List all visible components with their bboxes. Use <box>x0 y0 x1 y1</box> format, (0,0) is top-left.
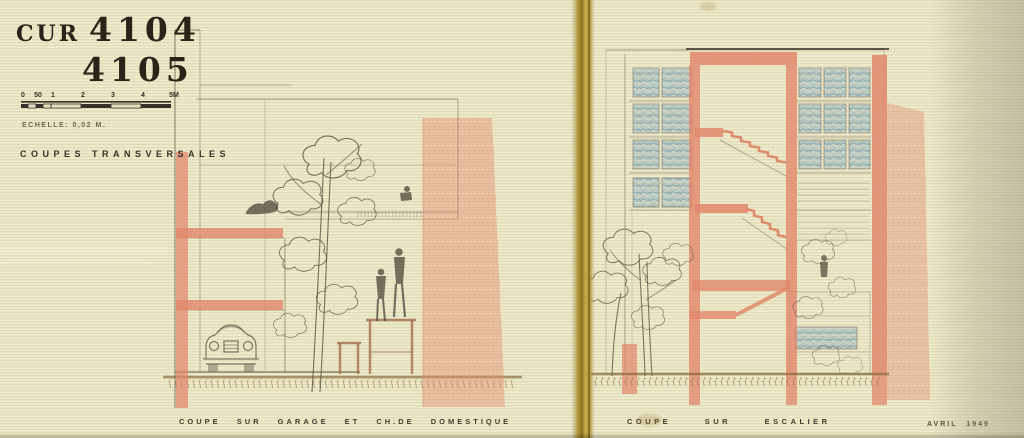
paper-stain <box>700 2 716 11</box>
scan-streak <box>0 247 168 254</box>
title-block: CUR 4104 4105 <box>16 10 201 89</box>
tree-sketch <box>584 229 693 376</box>
scanned-drawing-sheet: CUR 4104 4105 0 50 1 2 3 4 5M <box>0 0 1024 438</box>
series-title: COUPES TRANSVERSALES <box>20 149 230 159</box>
shrub-sketch <box>793 230 863 375</box>
photo-edge-shading <box>930 0 1024 438</box>
tree-sketch <box>273 136 376 392</box>
red-structure <box>176 152 283 408</box>
scale-label: 50 <box>34 92 42 99</box>
scale-label: 2 <box>81 92 85 99</box>
scale-label: 0 <box>21 92 25 99</box>
scale-label: 5M <box>169 92 179 99</box>
furniture-sketch <box>337 320 416 374</box>
scale-label: 4 <box>141 92 145 99</box>
car-sketch <box>203 325 259 372</box>
scale-note: ECHELLE: 0,02 M. <box>22 122 106 129</box>
red-wall-wash <box>423 118 505 407</box>
figure-sketch <box>820 255 828 277</box>
archive-prefix: CUR <box>16 21 80 47</box>
photo-bottom-edge <box>0 433 1024 438</box>
scale-label: 3 <box>111 92 115 99</box>
scale-bar-graphic <box>21 101 191 113</box>
red-wall-wash <box>887 103 930 400</box>
drawing-number-1: 4104 <box>89 10 201 49</box>
scan-streak <box>0 259 150 264</box>
scale-label: 1 <box>51 92 55 99</box>
paper-stain <box>636 414 662 426</box>
building-outline <box>175 30 458 408</box>
graphic-scale-bar: 0 50 1 2 3 4 5M <box>21 92 199 116</box>
drawing-number-2: 4105 <box>82 50 194 89</box>
left-section-drawing <box>163 30 522 408</box>
hatch-band <box>357 213 424 216</box>
right-section-drawing <box>584 49 930 405</box>
binding-tape-strip <box>571 0 595 438</box>
caption-coupe-garage: COUPE SUR GARAGE ET CH.DE DOMESTIQUE <box>179 417 511 426</box>
binding-fold-line <box>588 0 590 438</box>
